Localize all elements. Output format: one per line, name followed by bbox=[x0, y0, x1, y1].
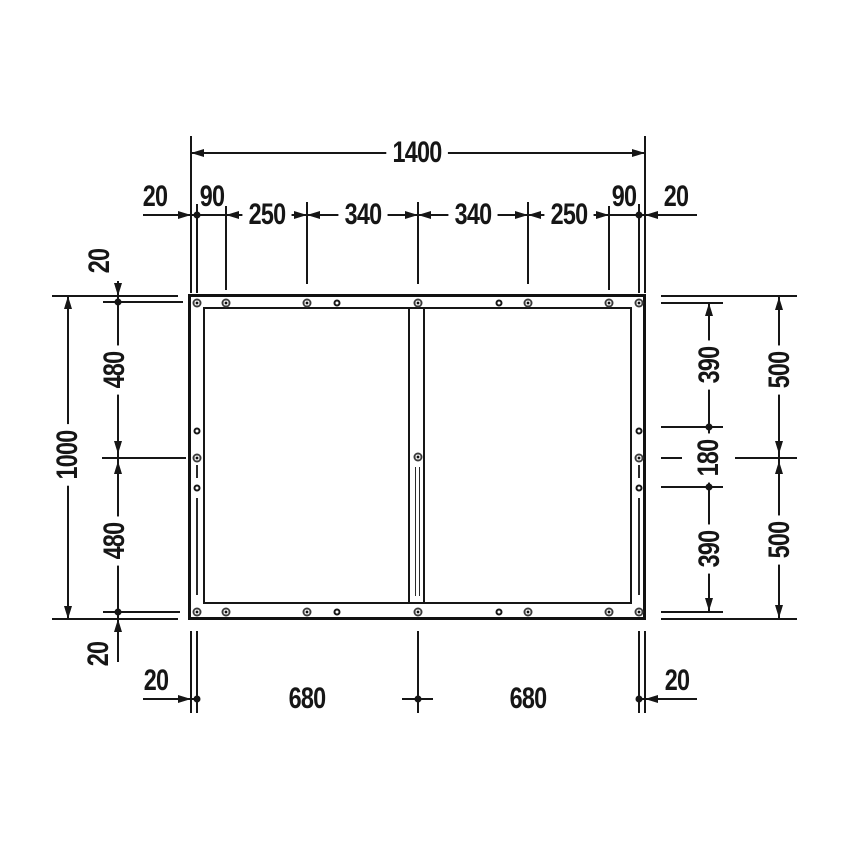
extension-line bbox=[661, 486, 723, 488]
dim-label-top-90-right: 90 bbox=[612, 182, 636, 212]
arrowhead bbox=[178, 695, 191, 703]
right-rail-slot-long bbox=[638, 498, 640, 595]
screw-hole-icon bbox=[193, 427, 200, 434]
dim-label-left-overall: 1000 bbox=[52, 424, 84, 485]
bolt-icon bbox=[192, 453, 201, 462]
extension-line bbox=[661, 457, 682, 459]
dim-label-bottom-offset-right: 20 bbox=[665, 666, 689, 696]
dim-label-bottom-680-left: 680 bbox=[282, 683, 331, 715]
bolt-icon bbox=[222, 608, 231, 617]
dimension-dot bbox=[193, 696, 200, 703]
right-rail-slot-short bbox=[638, 465, 640, 478]
arrowhead bbox=[418, 211, 431, 219]
arrowhead bbox=[114, 461, 122, 474]
screw-hole-icon bbox=[496, 299, 503, 306]
bolt-icon bbox=[192, 298, 201, 307]
dim-label-right-180: 180 bbox=[693, 433, 725, 482]
dim-label-left-offset-top: 20 bbox=[85, 249, 115, 273]
arrowhead bbox=[775, 441, 783, 454]
arrowhead bbox=[191, 149, 204, 157]
bolt-icon bbox=[303, 608, 312, 617]
screw-hole-icon bbox=[496, 609, 503, 616]
bolt-icon bbox=[222, 298, 231, 307]
dim-label-right-500-upper: 500 bbox=[764, 345, 796, 394]
dim-label-top-offset-right: 20 bbox=[664, 182, 688, 212]
arrowhead bbox=[705, 303, 713, 316]
arrowhead bbox=[405, 211, 418, 219]
extension-line bbox=[661, 426, 723, 428]
screw-hole-icon bbox=[635, 484, 642, 491]
dimension-dot bbox=[414, 696, 421, 703]
bolt-icon bbox=[605, 298, 614, 307]
arrowhead bbox=[178, 211, 191, 219]
left-rail-slot-short bbox=[196, 465, 198, 478]
dim-label-top-90-left: 90 bbox=[200, 182, 224, 212]
dimension-dot bbox=[635, 696, 642, 703]
arrowhead bbox=[632, 149, 645, 157]
arrowhead bbox=[114, 619, 122, 632]
bolt-icon bbox=[605, 608, 614, 617]
bolt-icon bbox=[192, 608, 201, 617]
dim-label-bottom-680-right: 680 bbox=[503, 683, 552, 715]
arrowhead bbox=[114, 441, 122, 454]
dim-label-bottom-offset-left: 20 bbox=[144, 666, 168, 696]
dim-label-left-480-upper: 480 bbox=[99, 345, 131, 394]
bolt-icon bbox=[524, 608, 533, 617]
extension-line bbox=[102, 457, 186, 459]
arrowhead bbox=[226, 211, 239, 219]
bolt-icon bbox=[413, 298, 422, 307]
bolt-icon bbox=[634, 298, 643, 307]
technical-drawing: 1400 20 90 250 340 340 250 90 20 20 480 … bbox=[0, 0, 850, 850]
arrowhead bbox=[775, 461, 783, 474]
dim-label-top-250-right: 250 bbox=[544, 199, 593, 231]
extension-line bbox=[661, 611, 723, 613]
screw-hole-icon bbox=[635, 427, 642, 434]
bolt-icon bbox=[303, 298, 312, 307]
dimension-dot bbox=[193, 212, 200, 219]
arrowhead bbox=[775, 605, 783, 618]
arrowhead bbox=[307, 211, 320, 219]
arrowhead bbox=[596, 211, 609, 219]
dimension-dot bbox=[115, 608, 122, 615]
dim-label-top-offset-left: 20 bbox=[143, 182, 167, 212]
screw-hole-icon bbox=[334, 299, 341, 306]
arrowhead bbox=[705, 598, 713, 611]
screw-hole-icon bbox=[193, 484, 200, 491]
arrowhead bbox=[64, 296, 72, 309]
arrowhead bbox=[645, 211, 658, 219]
dimension-line bbox=[143, 698, 199, 700]
arrowhead bbox=[294, 211, 307, 219]
dimension-dot bbox=[706, 424, 713, 431]
bolt-icon bbox=[524, 298, 533, 307]
bolt-icon bbox=[634, 608, 643, 617]
dim-label-right-390-lower: 390 bbox=[694, 524, 726, 573]
dim-label-right-500-lower: 500 bbox=[764, 515, 796, 564]
dimension-dot bbox=[635, 212, 642, 219]
dim-label-top-340-right: 340 bbox=[448, 199, 497, 231]
arrowhead bbox=[645, 695, 658, 703]
dim-label-left-offset-bottom: 20 bbox=[84, 642, 114, 666]
bolt-icon bbox=[413, 608, 422, 617]
dim-label-top-250-left: 250 bbox=[242, 199, 291, 231]
center-rail-slot bbox=[415, 467, 420, 596]
bolt-icon bbox=[634, 453, 643, 462]
dim-label-left-480-lower: 480 bbox=[99, 516, 131, 565]
bolt-icon bbox=[413, 453, 422, 462]
dim-label-top-340-left: 340 bbox=[338, 199, 387, 231]
extension-line bbox=[735, 457, 797, 459]
dim-label-right-390-upper: 390 bbox=[694, 340, 726, 389]
dimension-dot bbox=[706, 484, 713, 491]
arrowhead bbox=[114, 283, 122, 296]
arrowhead bbox=[64, 606, 72, 619]
left-rail-slot-long bbox=[196, 498, 198, 595]
dim-label-top-overall: 1400 bbox=[386, 137, 447, 169]
dimension-dot bbox=[115, 299, 122, 306]
arrowhead bbox=[775, 297, 783, 310]
extension-line bbox=[661, 302, 723, 304]
arrowhead bbox=[528, 211, 541, 219]
arrowhead bbox=[515, 211, 528, 219]
screw-hole-icon bbox=[334, 609, 341, 616]
